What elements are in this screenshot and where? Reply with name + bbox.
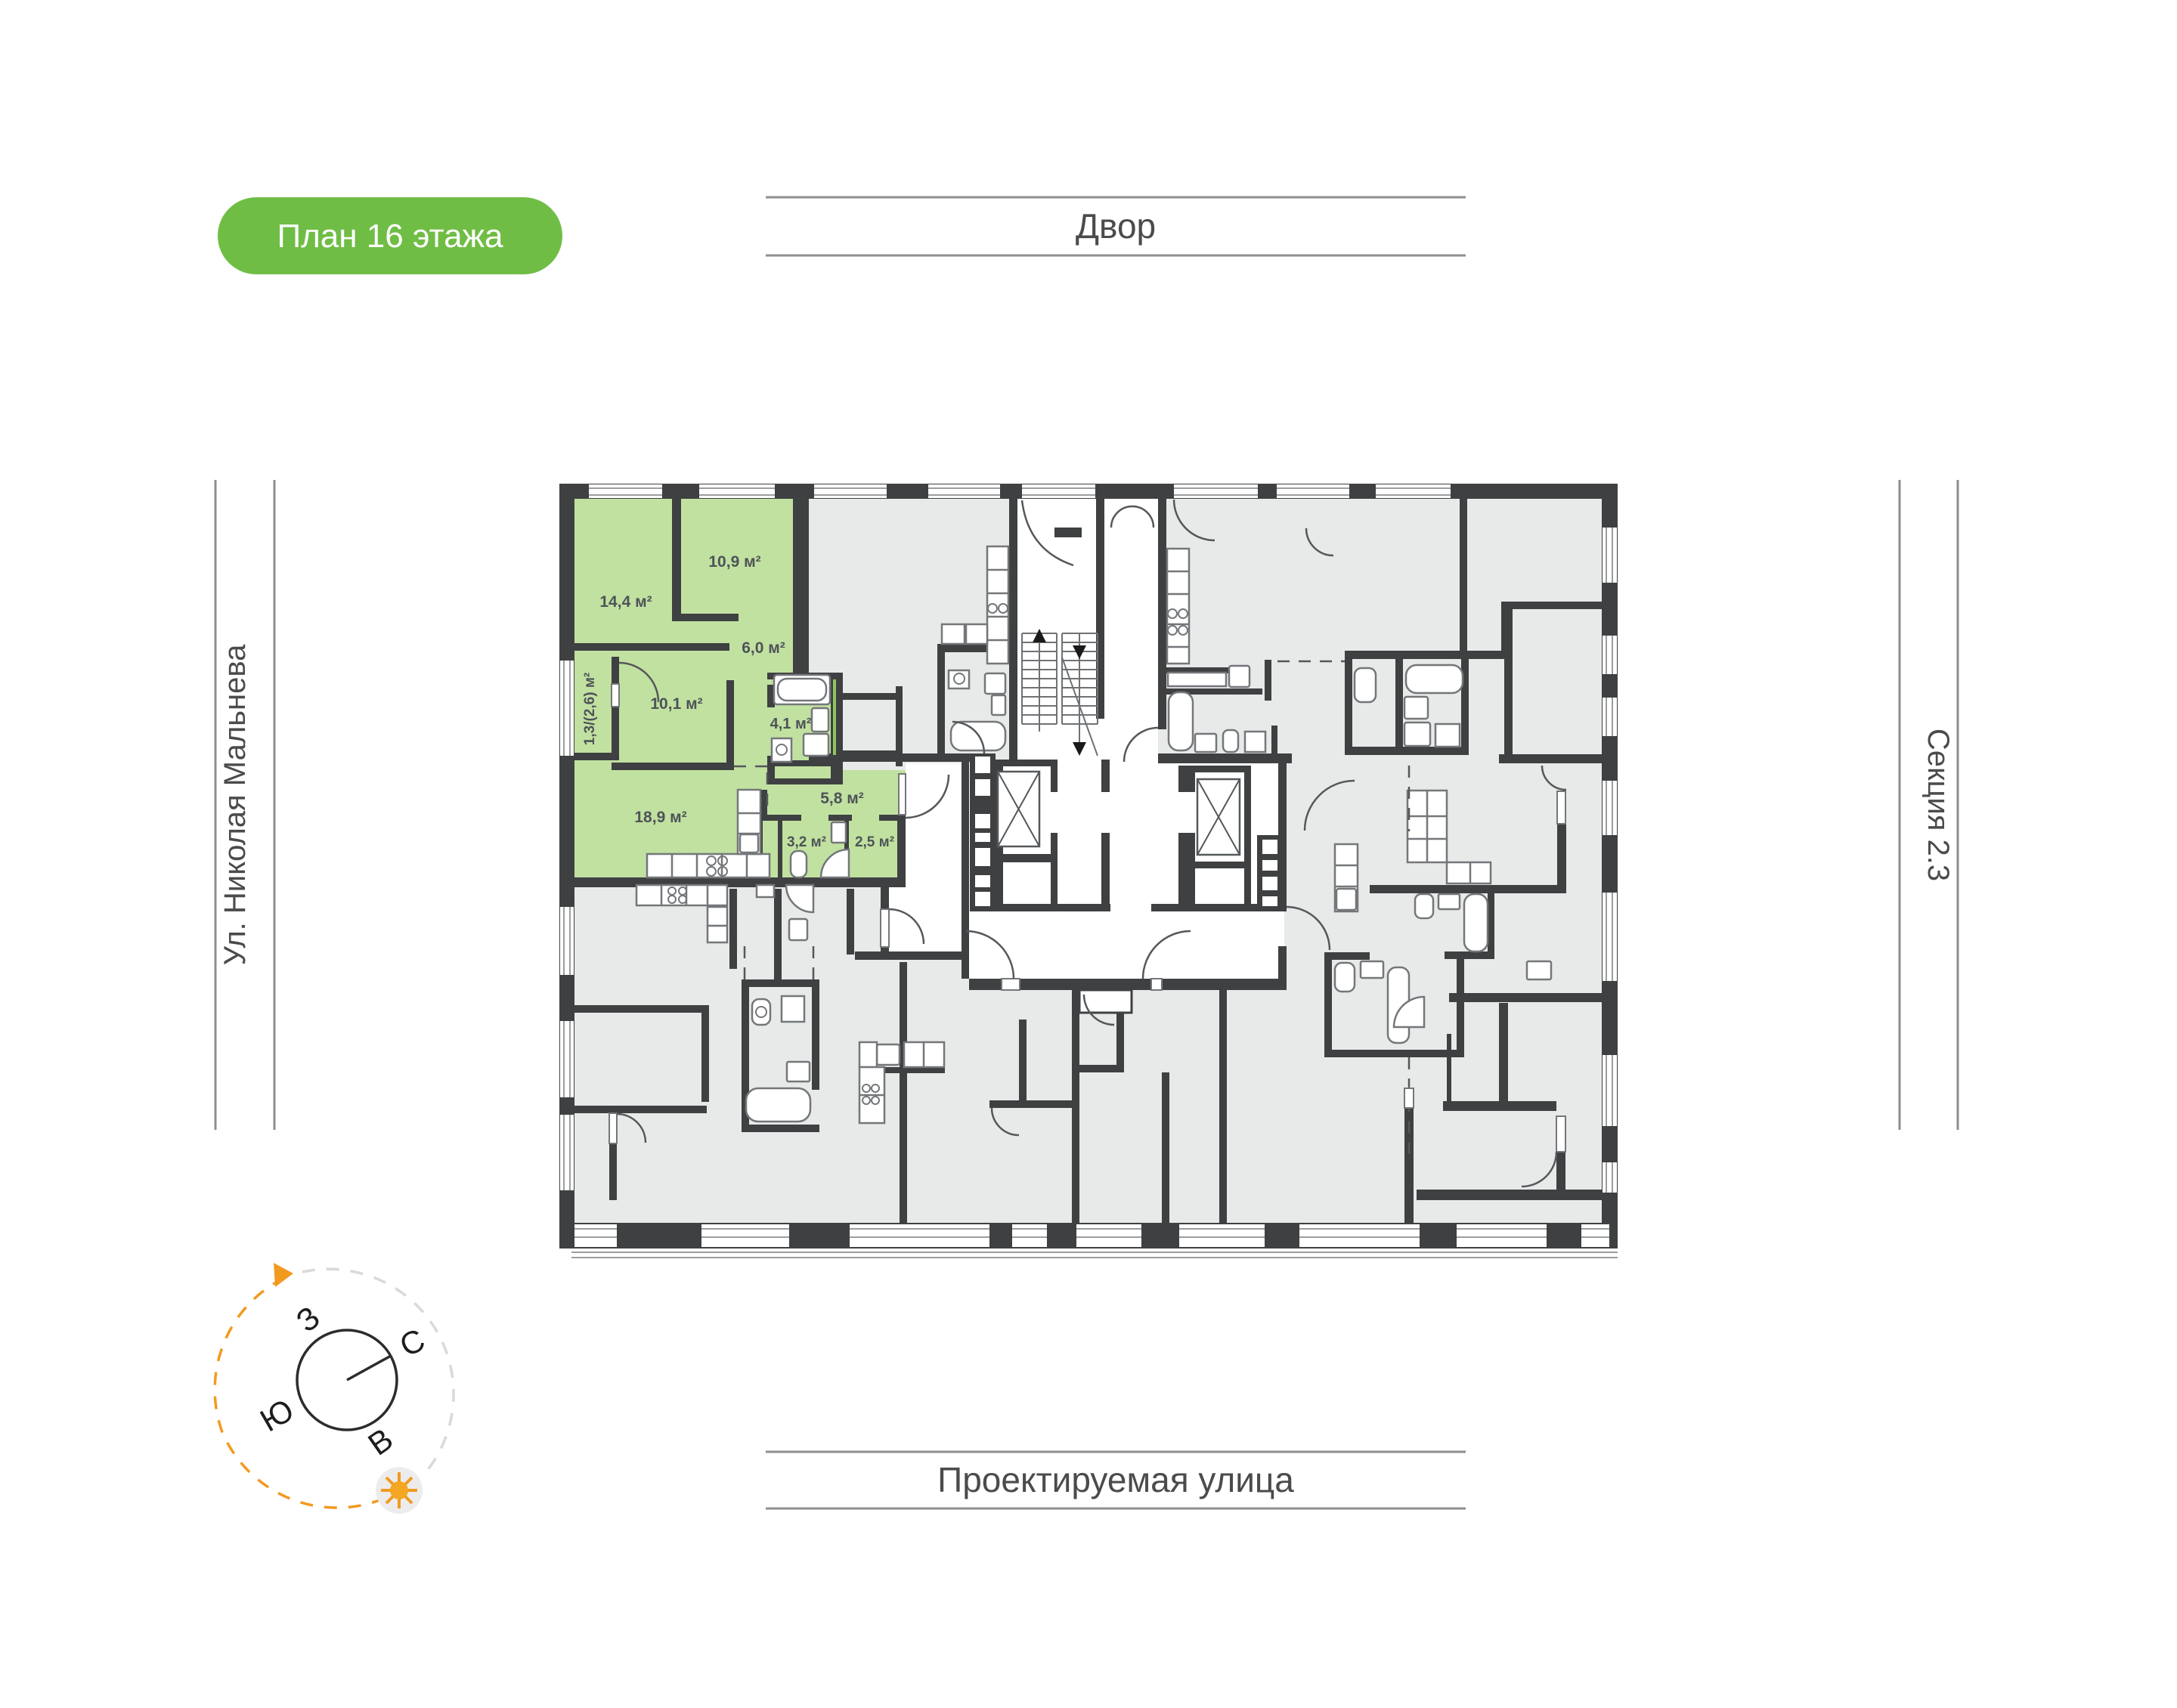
svg-text:5,8 м²: 5,8 м² [820,790,864,807]
svg-text:10,1 м²: 10,1 м² [650,695,702,713]
svg-text:План 16 этажа: План 16 этажа [277,218,504,255]
svg-text:В: В [361,1421,399,1462]
svg-text:6,0 м²: 6,0 м² [742,639,785,657]
svg-text:2,5 м²: 2,5 м² [855,834,894,850]
svg-text:С: С [394,1322,430,1364]
svg-text:4,1 м²: 4,1 м² [770,716,812,732]
svg-text:18,9 м²: 18,9 м² [634,809,686,826]
svg-text:Ю: Ю [254,1391,299,1438]
svg-text:1,3/(2,6) м²: 1,3/(2,6) м² [582,673,598,745]
svg-text:Ул. Николая Мальнева: Ул. Николая Мальнева [218,644,252,966]
svg-text:14,4 м²: 14,4 м² [599,593,652,611]
svg-text:Двор: Двор [1076,206,1156,246]
svg-text:3,2 м²: 3,2 м² [787,834,826,850]
svg-text:Проектируемая улица: Проектируемая улица [937,1460,1294,1499]
svg-text:10,9 м²: 10,9 м² [708,553,760,571]
svg-text:З: З [290,1299,327,1339]
svg-text:Секция 2.3: Секция 2.3 [1922,729,1955,881]
